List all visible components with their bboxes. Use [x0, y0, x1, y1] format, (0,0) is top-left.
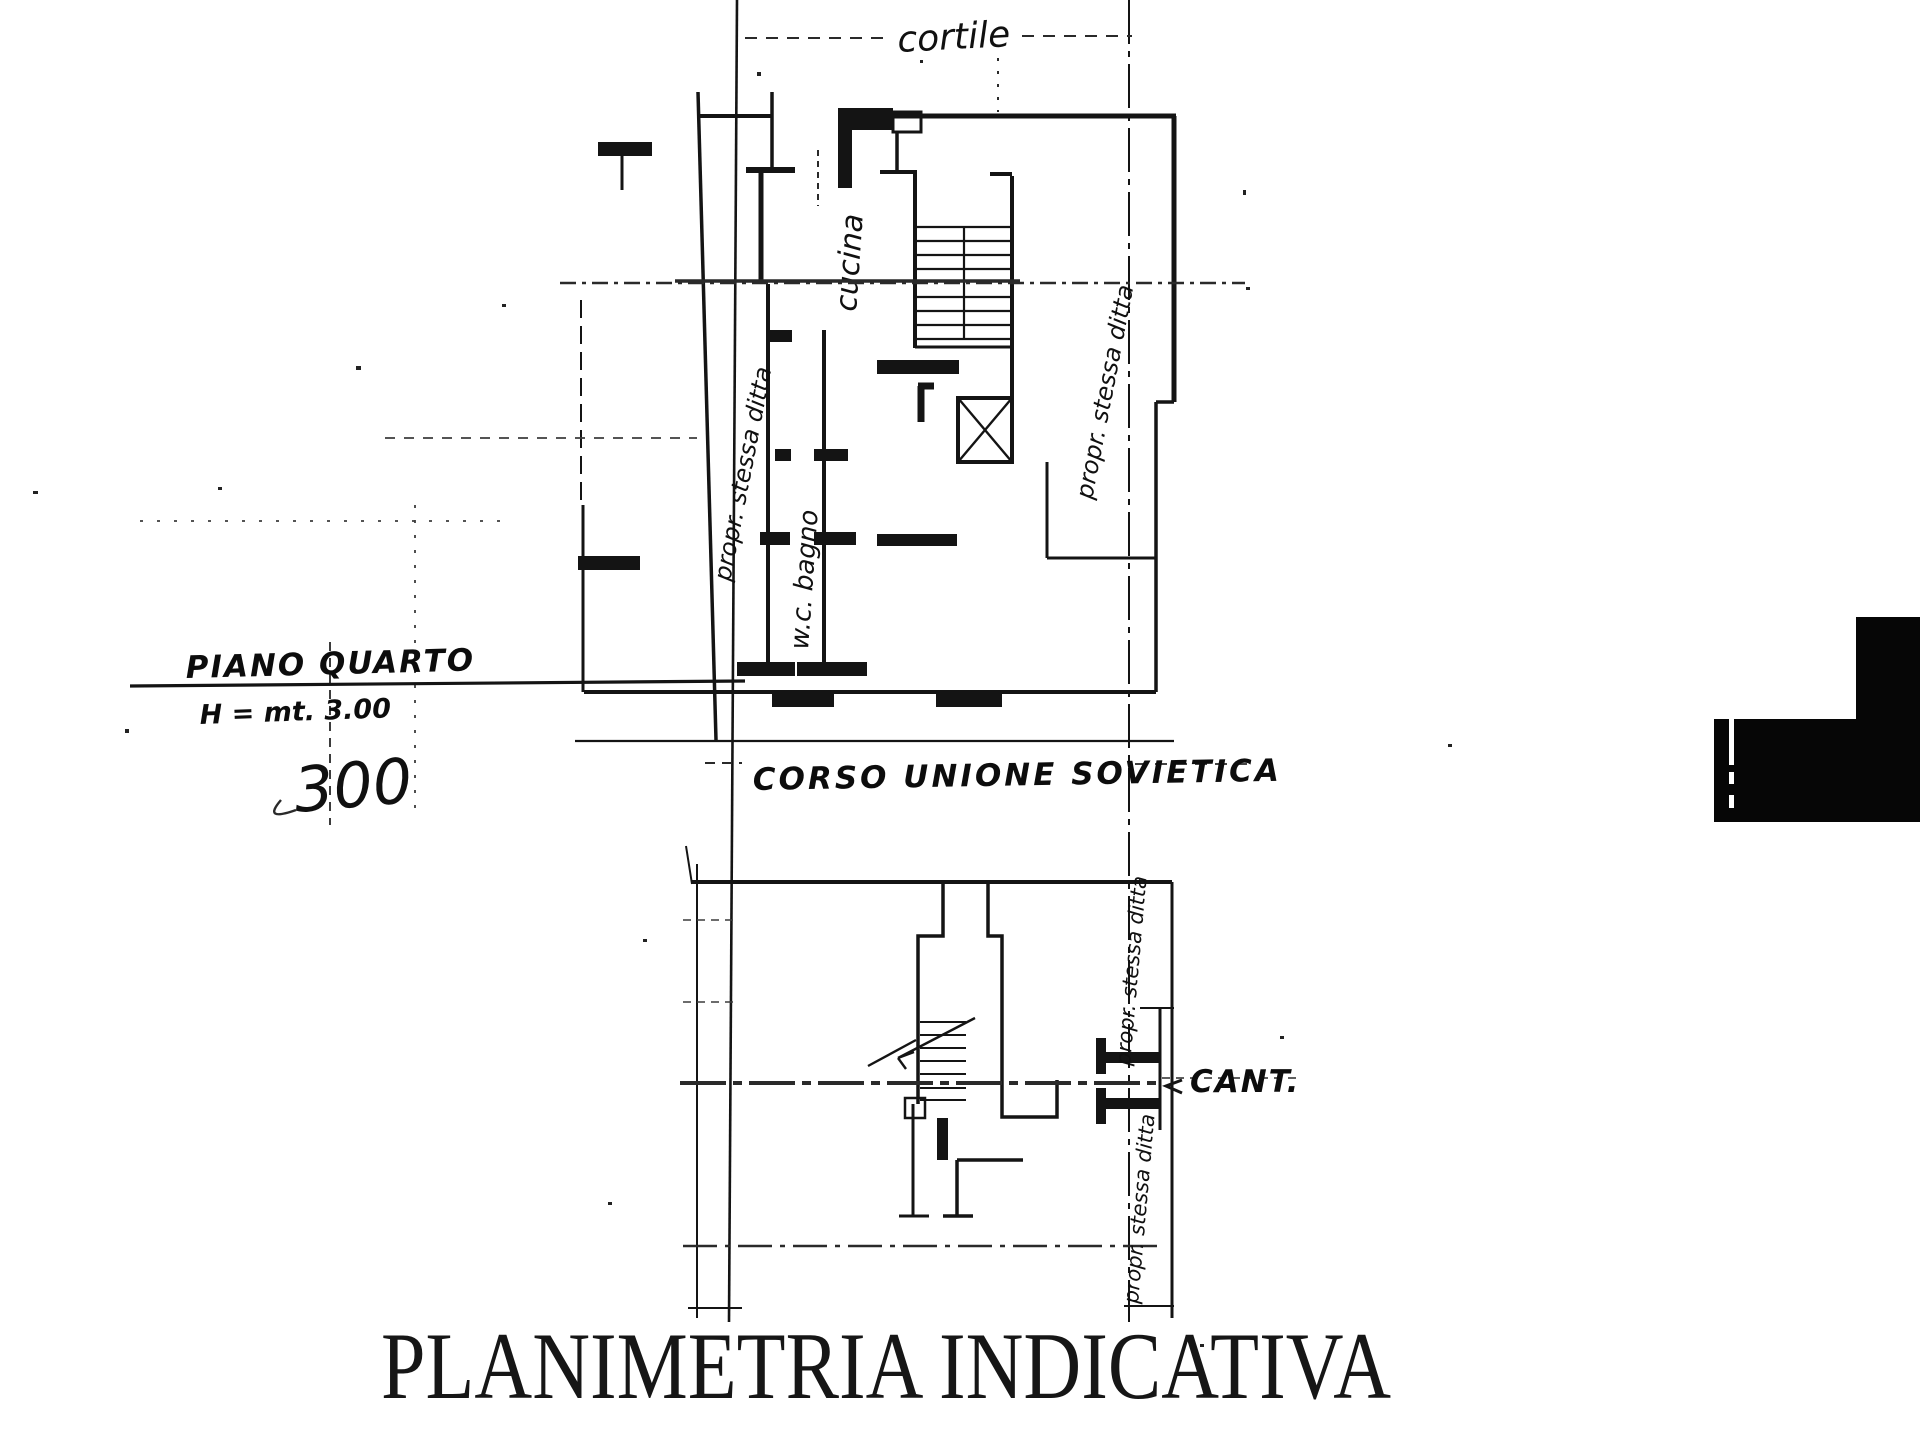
- cellar-door-jamb-2: [1096, 1088, 1106, 1124]
- wc-right-foot: [797, 662, 867, 676]
- cellar-column-1: [899, 1104, 929, 1216]
- elevator-door-stub: [918, 386, 934, 422]
- lower-bottom-ticks: [688, 1306, 1174, 1308]
- bathroom-label: w.c. bagno: [785, 509, 825, 651]
- cellar-label: CANT.: [1190, 1064, 1300, 1100]
- cellar-arrow-icon: [1166, 1080, 1182, 1093]
- blob-white-dash-1: [1729, 772, 1734, 784]
- plan-number-flourish: [274, 800, 296, 814]
- upper-left-door-jamb: [578, 556, 640, 570]
- street-band: CORSO UNIONE SOVIETICA: [705, 753, 1282, 798]
- courtyard-area: cortile: [745, 14, 1132, 112]
- hall-door-jamb-3: [760, 532, 790, 545]
- hall-wall-segment: [877, 534, 957, 546]
- cellar-door-wall-2: [1106, 1098, 1160, 1109]
- lower-floor-plan: CANT. propr. stessa ditta propr. stessa …: [680, 846, 1300, 1318]
- upper-bottom-pilaster-right: [936, 692, 1002, 707]
- scanned-floorplan-sheet: cortile: [0, 0, 1920, 1440]
- hall-door-jamb-2: [814, 449, 848, 461]
- wc-left-foot: [737, 662, 795, 676]
- blob-lower-rect: [1714, 719, 1920, 822]
- floor-height-label: H = mt. 3.00: [199, 693, 391, 731]
- hall-door-jamb-1: [775, 449, 791, 461]
- elevator-shaft: [877, 360, 1012, 462]
- floorplan-drawing: cortile: [0, 0, 1920, 1440]
- upper-floor-plan: cucina w.c. bagno propr. stessa ditta pr…: [578, 92, 1176, 740]
- wc-door-jamb-top: [768, 330, 792, 342]
- cellar-column-2: [943, 1160, 1023, 1216]
- lower-top-left-tick: [686, 846, 692, 884]
- lower-upper-boundary-note: propr. stessa ditta: [1111, 875, 1152, 1068]
- document-title: PLANIMETRIA INDICATIVA: [381, 1313, 1391, 1419]
- elevator-thick-wall: [877, 360, 959, 374]
- floor-annotation: PIANO QUARTO H = mt. 3.00 300: [185, 642, 475, 827]
- cellar-stair-left-outline: [918, 884, 943, 1104]
- reference-lines: [130, 281, 1245, 825]
- lower-lower-boundary-note: propr. stessa ditta: [1119, 1113, 1160, 1306]
- lot-boundary-lines: [729, 0, 1129, 1322]
- courtyard-label: cortile: [896, 14, 1011, 61]
- upper-left-outer-wall: [698, 92, 716, 740]
- floor-label: PIANO QUARTO: [185, 642, 475, 686]
- lower-left-ticks: [683, 920, 733, 1002]
- plan-number: 300: [291, 744, 415, 827]
- kitchen-label: cucina: [829, 213, 871, 313]
- blob-white-dash-2: [1729, 795, 1734, 808]
- elevator-x-mark: [958, 398, 1012, 462]
- cellar-door-jamb-1: [1096, 1038, 1106, 1074]
- blob-white-slit: [1729, 719, 1734, 765]
- cellar-black-pier: [937, 1118, 948, 1160]
- scan-artifact-blob: [1714, 617, 1920, 822]
- boundary-line-left: [729, 0, 737, 1322]
- upper-right-step-wall: [1156, 402, 1174, 692]
- stair-landing-walls: [880, 172, 1012, 174]
- upper-bottom-pilaster-left: [772, 692, 834, 707]
- upper-top-thick-wall: [838, 108, 893, 188]
- balcony-sill: [598, 142, 652, 156]
- street-name-label: CORSO UNIONE SOVIETICA: [753, 753, 1283, 798]
